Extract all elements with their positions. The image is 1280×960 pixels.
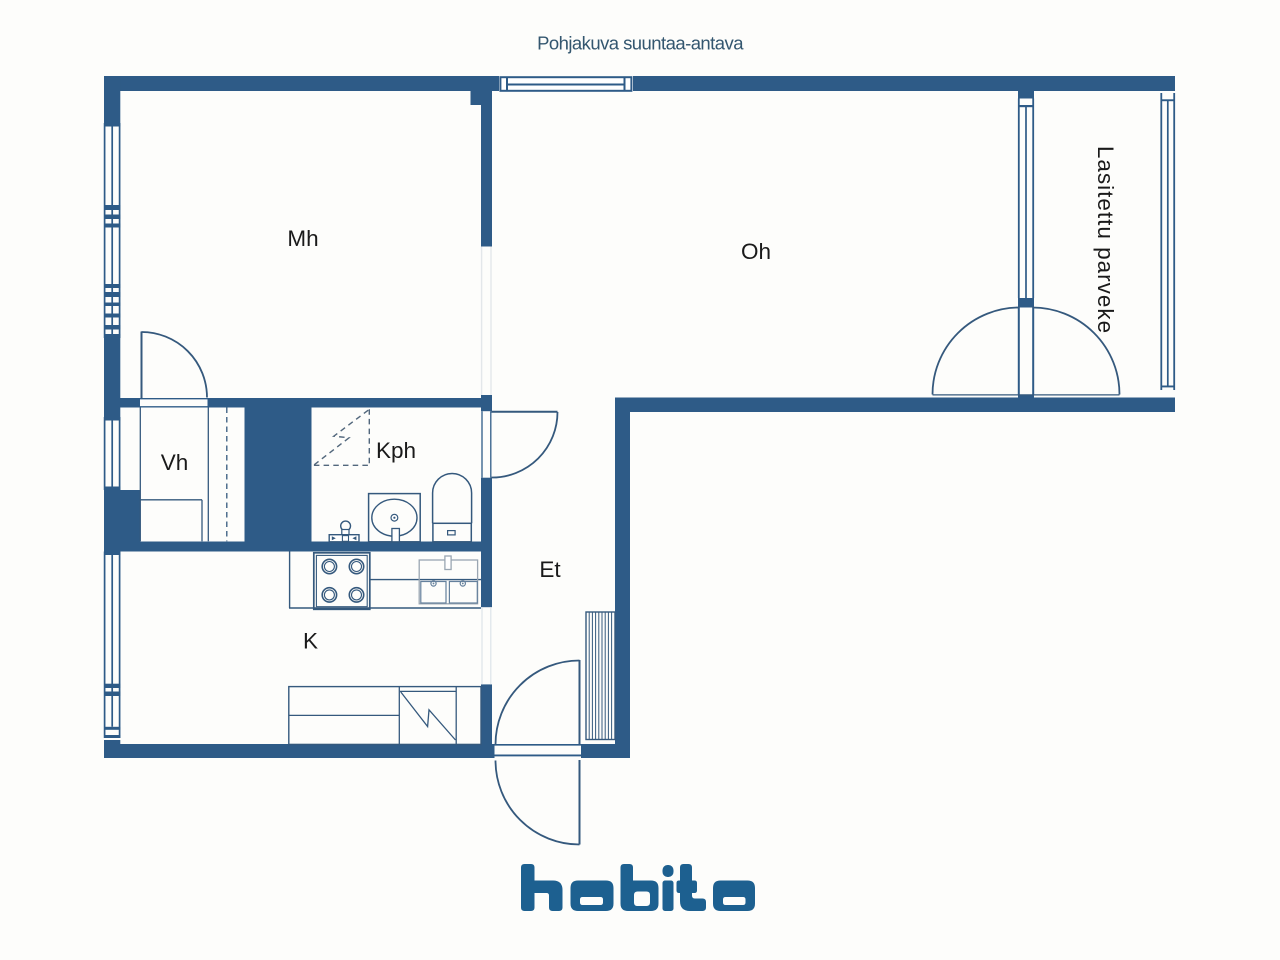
svg-text:Et: Et [539, 557, 561, 582]
svg-text:Lasitettu parveke: Lasitettu parveke [1093, 146, 1118, 334]
svg-text:Oh: Oh [741, 239, 771, 264]
svg-text:Mh: Mh [287, 226, 318, 251]
svg-text:Kph: Kph [376, 438, 416, 463]
svg-text:Vh: Vh [161, 450, 189, 475]
svg-text:Pohjakuva suuntaa-antava: Pohjakuva suuntaa-antava [537, 33, 744, 54]
svg-text:K: K [303, 629, 318, 654]
